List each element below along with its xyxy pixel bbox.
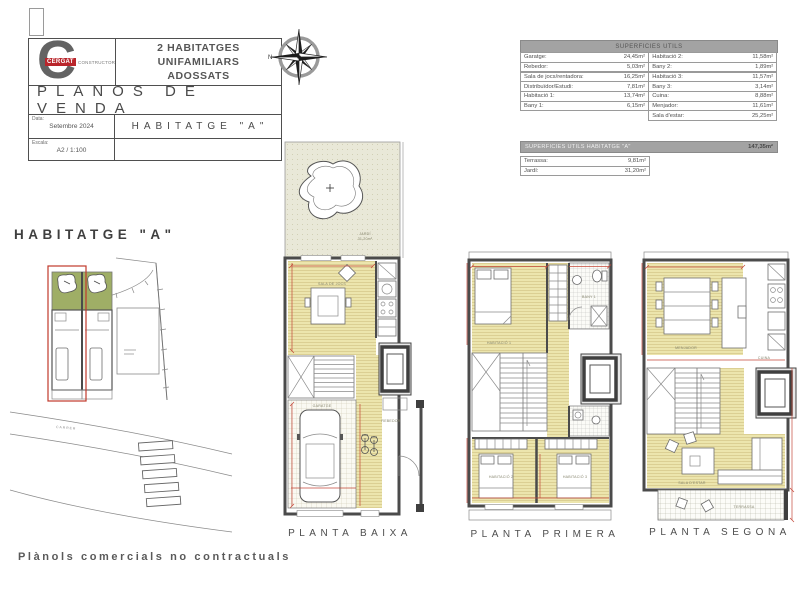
staircase [288, 356, 354, 398]
scale-value: A2 / 1:100 [32, 147, 111, 154]
surfaces-left-column: Garatge:24,45m² Rebedor:5,03m² Sala de j… [520, 53, 649, 121]
hab3-label: HABITACIÓ 3 [563, 474, 587, 479]
twin-houses [52, 272, 112, 399]
bed [475, 268, 511, 324]
street: CARRER [10, 412, 232, 476]
surface-value: 16,25m² [624, 74, 645, 80]
garden-label: JARDÍ [359, 232, 370, 236]
surface-label: Sala d'estar: [652, 113, 684, 119]
surface-value: 6,15m² [627, 103, 645, 109]
surface-value: 24,45m² [624, 54, 645, 60]
surface-row: Sala d'estar:25,25m² [648, 110, 777, 121]
hab1-label: HABITACIÓ 1 [487, 340, 511, 345]
elevator-shaft [756, 368, 796, 418]
tree-icon [299, 161, 362, 219]
window [555, 505, 583, 510]
fridge-icon [768, 312, 785, 330]
door-arc [399, 456, 419, 476]
surface-label: Habitació 1: [524, 93, 555, 99]
project-title-line1: 2 HABITATGES UNIFAMILIARS [116, 41, 281, 69]
surface-label: Cuina: [652, 93, 669, 99]
cuina-label: CUINA [758, 356, 771, 360]
logo-brand-text: CERGAT [45, 58, 76, 66]
bathroom-2 [569, 406, 609, 438]
garden-area-label: 31,20m² [358, 237, 373, 241]
site-plan-title: HABITATGE "A" [14, 227, 176, 242]
surfaces-right-column: Habitació 2:11,58m² Bany 2:1,89m² Habita… [648, 53, 777, 121]
corridor-floor [720, 368, 744, 434]
surface-value: 8,88m² [755, 93, 773, 99]
planta-baixa-label: PLANTA BAIXA [270, 528, 430, 539]
surface-value: 31,20m² [625, 168, 646, 174]
street-edge-2 [10, 490, 232, 532]
wardrobe [475, 439, 527, 449]
surface-label: Rebedor: [524, 64, 548, 70]
surfaces-total-bar: SUPERFICIES UTILS HABITATGE "A" 147,35m² [520, 141, 778, 153]
surface-value: 11,61m² [752, 103, 773, 109]
scale-cell: Escala: A2 / 1:100 [29, 139, 115, 160]
hob-icon [768, 284, 785, 308]
unit-title: HABITATGE "A" [115, 115, 281, 138]
car-icon [90, 348, 102, 380]
rebedor-label: REBEDOR [381, 419, 400, 423]
plan-type-title: PLANOS DE VENDA [29, 86, 281, 115]
sink-icon [573, 276, 582, 285]
surface-value: 25,25m² [752, 113, 773, 119]
plan-sheet: C CERGAT CONSTRUCTORS 2 HABITATGES UNIFA… [0, 0, 800, 600]
rear-window [301, 256, 331, 261]
surface-label: Habitació 3: [652, 74, 683, 80]
date-value: Setembre 2024 [32, 123, 111, 130]
menjador-label: MENJADOR [675, 346, 697, 350]
dining-table [656, 278, 718, 334]
garden: JARDÍ 31,20m² [285, 142, 403, 258]
terrace: TERRASSA [658, 490, 788, 520]
surface-row: Jardí:31,20m² [520, 166, 650, 177]
tree-icon [88, 274, 107, 293]
planta-segona-drawing: TERRASSA MENJADOR CUINA SALA D'ESTAR [640, 248, 800, 526]
surface-value: 1,89m² [755, 64, 773, 70]
garage-label: GARATGE [313, 404, 332, 408]
planta-segona-label: PLANTA SEGONA [640, 527, 800, 538]
project-title: 2 HABITATGES UNIFAMILIARS ADOSSATS [116, 39, 281, 85]
surface-label: Jardí: [524, 168, 539, 174]
bany1-label: BANY 1 [582, 295, 596, 299]
neighbour-parcel [117, 308, 159, 374]
title-block-row-3: Data: Setembre 2024 HABITATGE "A" [29, 115, 281, 139]
date-label: Data: [32, 116, 111, 122]
surface-value: 3,14m² [755, 84, 773, 90]
surface-value: 5,03m² [627, 64, 645, 70]
garage-door-opening [297, 511, 343, 517]
surface-label: Sala de jocs/rentadora: [524, 74, 584, 80]
wardrobe [549, 265, 567, 321]
sink-icon [592, 416, 600, 424]
laundry-appliances [376, 261, 396, 338]
title-block: C CERGAT CONSTRUCTORS 2 HABITATGES UNIFA… [28, 38, 282, 161]
site-plan-drawing: CARRER [4, 250, 239, 540]
entry-door-opening [361, 511, 379, 517]
total-label: SUPERFICIES UTILS HABITATGE "A" [525, 144, 631, 150]
surface-label: Bany 1: [524, 103, 544, 109]
wardrobe [545, 439, 597, 449]
disclaimer-text: Plànols comercials no contractuals [18, 551, 291, 563]
hall-floor [356, 355, 382, 400]
surface-value: 7,81m² [627, 84, 645, 90]
elevator-shaft [379, 343, 411, 395]
sheet-fold-mark [29, 8, 44, 36]
title-block-row-1: C CERGAT CONSTRUCTORS 2 HABITATGES UNIFA… [29, 39, 281, 86]
total-value: 147,35m² [748, 144, 773, 150]
street-name-label: CARRER [56, 425, 77, 431]
scale-label: Escala: [32, 140, 111, 146]
sala-label: SALA DE JOCS [318, 282, 346, 286]
surface-label: Habitació 2: [652, 54, 683, 60]
surface-label: Bany 3: [652, 84, 672, 90]
surface-label: Distribuïdor/Estudi: [524, 84, 573, 90]
planta-baixa-drawing: JARDÍ 31,20m² [281, 138, 429, 526]
rear-window [341, 256, 365, 261]
surfaces-table: SUPERFICIES UTILS Garatge:24,45m² Rebedo… [520, 40, 778, 121]
title-block-row-4: Escala: A2 / 1:100 [29, 139, 281, 160]
logo-brand-suffix: CONSTRUCTORS [78, 60, 116, 65]
compass-north-label: N [268, 55, 272, 61]
surface-label: Garatge: [524, 54, 547, 60]
elevator-shaft [581, 354, 621, 404]
date-cell: Data: Setembre 2024 [29, 115, 115, 138]
tv-unit [682, 448, 714, 474]
company-logo: C CERGAT CONSTRUCTORS [29, 39, 116, 85]
surface-value: 13,74m² [624, 93, 645, 99]
planta-primera-drawing: HABITACIÓ 1 BANY 1 HABITACIÓ 2 HABITACIÓ… [465, 248, 625, 523]
project-title-line2: ADOSSATS [116, 69, 281, 83]
washer-icon [573, 410, 583, 420]
tree-icon [58, 274, 77, 293]
surface-value: 11,57m² [752, 74, 773, 80]
staircase [472, 353, 547, 431]
staircase [647, 368, 720, 434]
empty-cell [115, 139, 281, 160]
terrassa-label: TERRASSA [734, 505, 755, 509]
games-table [305, 288, 351, 324]
planta-primera-label: PLANTA PRIMERA [465, 529, 625, 540]
surface-label: Bany 2: [652, 64, 672, 70]
surfaces-table-header: SUPERFICIES UTILS [520, 40, 778, 53]
surface-row: Bany 1:6,15m² [520, 101, 649, 112]
toilet-icon [593, 270, 602, 282]
crosswalk [138, 440, 180, 506]
surface-value: 11,58m² [752, 54, 773, 60]
exterior-surfaces-table: Terrassa:9,81m² Jardí:31,20m² [520, 157, 650, 176]
compass-rose-icon: N [268, 28, 328, 88]
sala-estar-label: SALA D'ESTAR [678, 481, 706, 485]
car-icon [56, 348, 68, 380]
window [485, 505, 513, 510]
surface-label: Terrassa: [524, 158, 548, 164]
balcony-edge [469, 510, 611, 520]
surface-label: Menjador: [652, 103, 678, 109]
hab2-label: HABITACIÓ 2 [489, 474, 513, 479]
surface-value: 9,81m² [628, 158, 646, 164]
island-sink-icon [738, 306, 746, 318]
